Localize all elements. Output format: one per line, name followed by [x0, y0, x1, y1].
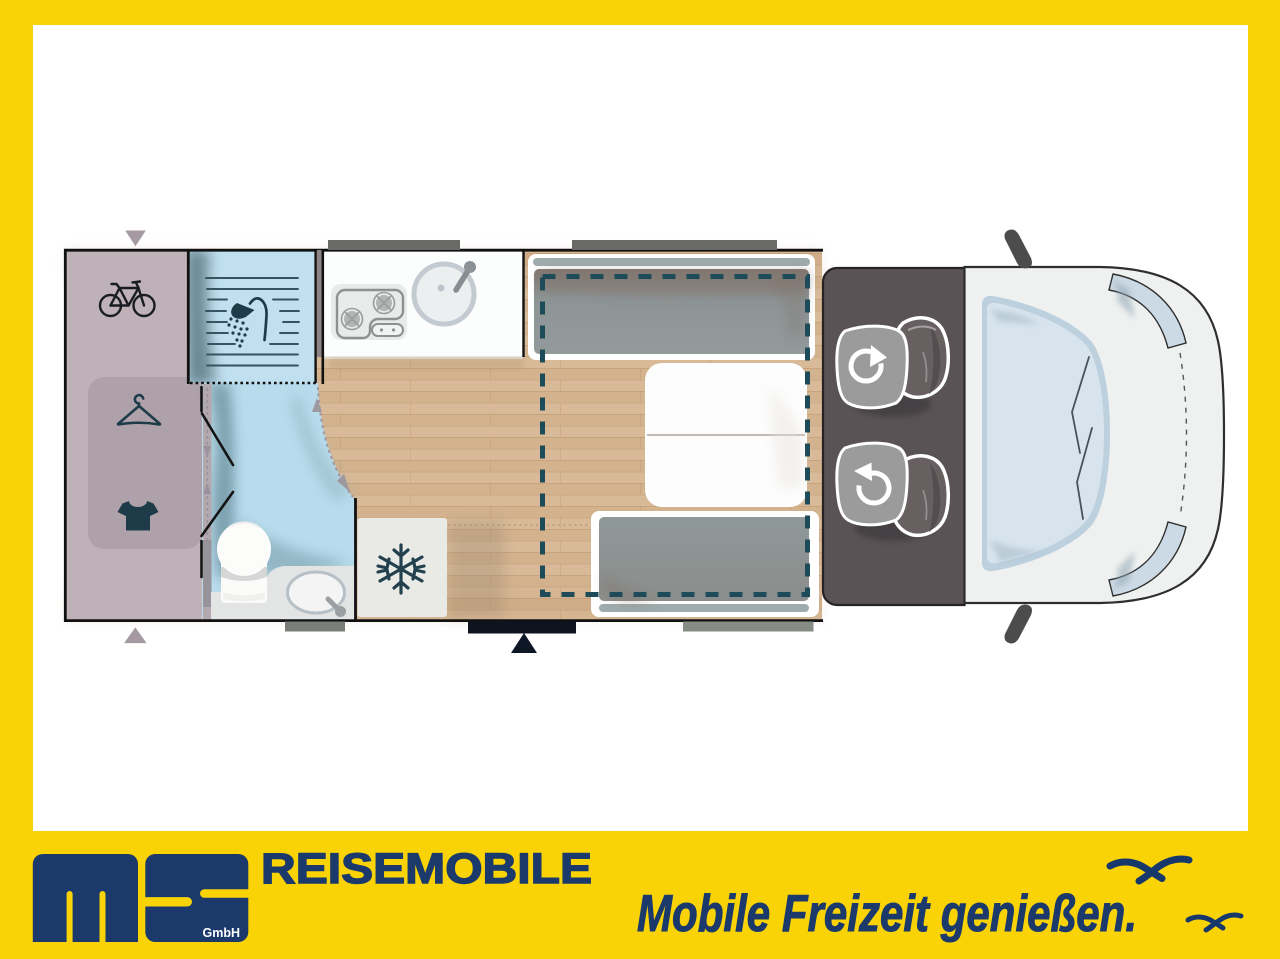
svg-text:REISEMOBILE: REISEMOBILE [261, 845, 592, 893]
svg-text:GmbH: GmbH [203, 926, 241, 940]
svg-text:Mobile Freizeit genießen.: Mobile Freizeit genießen. [637, 885, 1137, 943]
